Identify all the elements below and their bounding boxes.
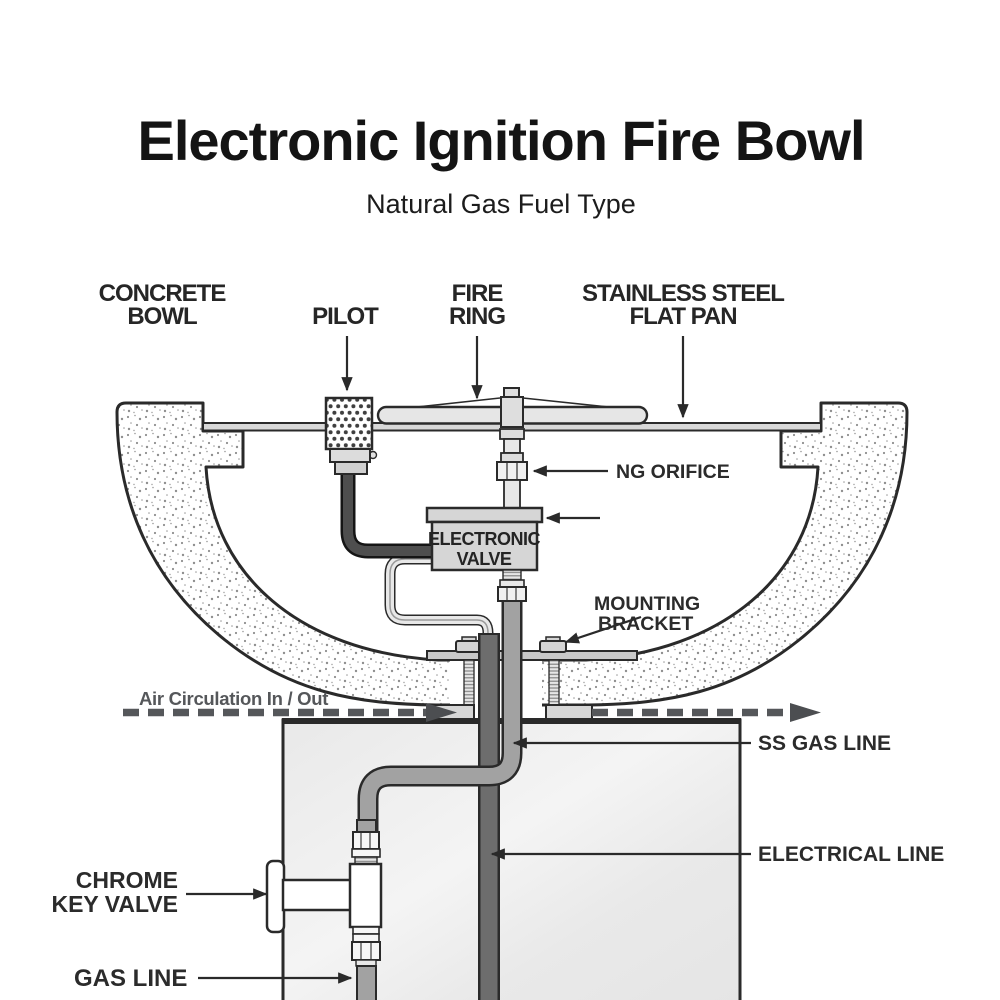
- chrome-key-valve-label-line2: KEY VALVE: [51, 891, 178, 917]
- fire-bowl-diagram: Electronic Ignition Fire Bowl Natural Ga…: [0, 0, 1000, 1000]
- key-valve-flange: [267, 861, 284, 932]
- header: Electronic Ignition Fire Bowl Natural Ga…: [137, 109, 864, 219]
- valve-outlet-nut: [498, 587, 526, 601]
- key-valve-stem: [283, 880, 352, 910]
- air-circulation-label: Air Circulation In / Out: [139, 688, 328, 709]
- bracket-nut-right: [540, 641, 566, 652]
- valve-outlet-threads: [503, 570, 521, 580]
- mounting-bracket-label-line2: BRACKET: [598, 613, 693, 635]
- threaded-rod-left: [464, 660, 474, 706]
- threaded-rod-right: [549, 660, 559, 706]
- ss-gas-line-label: SS GAS LINE: [758, 732, 891, 755]
- fire-ring-label-line2: RING: [449, 303, 505, 330]
- electrical-line-label: ELECTRICAL LINE: [758, 843, 944, 866]
- concrete-bowl-label-line2: BOWL: [127, 303, 197, 330]
- pilot-label: PILOT: [312, 303, 379, 330]
- fire-ring-hub: [501, 397, 523, 427]
- bowl-foot-right: [546, 705, 592, 720]
- key-valve-bottom-fitting: [352, 927, 380, 966]
- page-title: Electronic Ignition Fire Bowl: [137, 109, 864, 172]
- flat-pan-label-line2: FLAT PAN: [629, 303, 736, 330]
- pilot-collar: [330, 449, 370, 462]
- electronic-valve-label-line1: ELECTRONIC: [428, 529, 541, 549]
- air-arrow-right-head: [790, 703, 821, 722]
- ng-orifice-fitting: [497, 462, 527, 480]
- pilot-assembly: [326, 398, 377, 474]
- pilot-base: [335, 462, 367, 474]
- pilot-burner-head: [326, 398, 372, 449]
- page-subtitle: Natural Gas Fuel Type: [366, 189, 636, 219]
- key-valve-top-fitting: [352, 832, 380, 866]
- gas-line-label: GAS LINE: [74, 965, 187, 992]
- chrome-key-valve-label-line1: CHROME: [76, 867, 178, 893]
- fire-ring: [378, 388, 647, 427]
- key-valve-body: [350, 864, 381, 927]
- ng-orifice-label: NG ORIFICE: [616, 461, 730, 483]
- pilot-gas-tube: [348, 474, 433, 551]
- ng-orifice-column: [497, 429, 527, 508]
- gas-line-pipe: [357, 966, 376, 1000]
- electronic-valve: ELECTRONIC VALVE: [427, 508, 542, 601]
- mounting-bracket-label-line1: MOUNTING: [594, 593, 700, 615]
- electronic-valve-label-line2: VALVE: [457, 549, 512, 569]
